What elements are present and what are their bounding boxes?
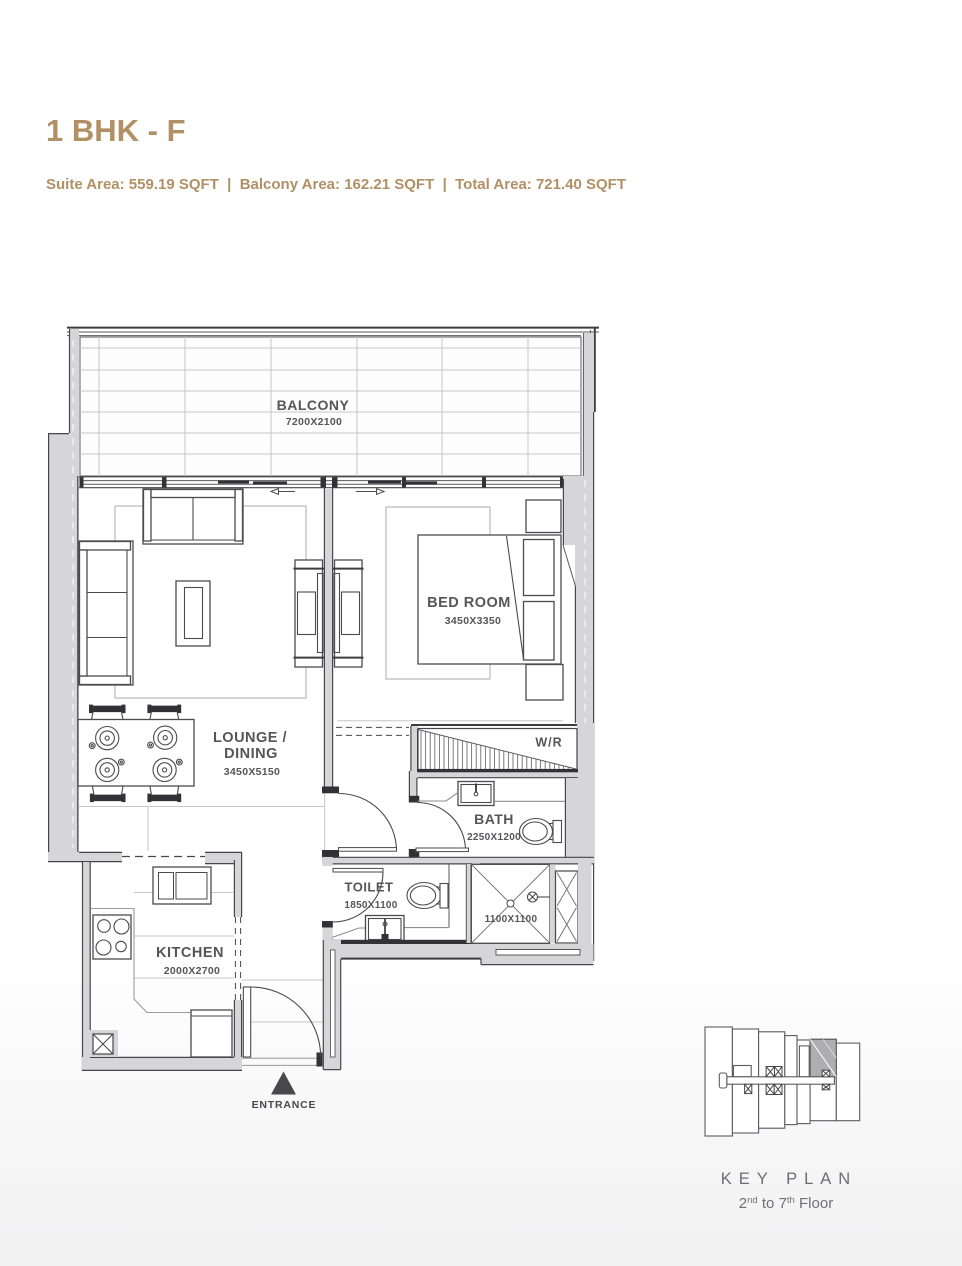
svg-text:TOILET: TOILET — [345, 880, 394, 895]
svg-text:ENTRANCE: ENTRANCE — [252, 1099, 317, 1111]
svg-text:BED ROOM: BED ROOM — [427, 595, 511, 611]
svg-text:3450X3350: 3450X3350 — [445, 615, 501, 627]
svg-text:1100X1100: 1100X1100 — [485, 914, 538, 925]
svg-text:2000X2700: 2000X2700 — [164, 965, 220, 977]
svg-text:LOUNGE /: LOUNGE / — [213, 730, 287, 746]
svg-text:3450X5150: 3450X5150 — [224, 766, 280, 778]
svg-text:KITCHEN: KITCHEN — [156, 945, 224, 961]
svg-text:1 BHK - F: 1 BHK - F — [46, 113, 186, 148]
svg-text:KEY PLAN: KEY PLAN — [721, 1170, 857, 1188]
svg-text:BATH: BATH — [474, 811, 514, 827]
svg-text:2250X1200: 2250X1200 — [467, 832, 521, 843]
svg-text:1850X1100: 1850X1100 — [344, 900, 397, 911]
svg-text:DINING: DINING — [224, 746, 278, 762]
svg-text:BALCONY: BALCONY — [277, 397, 350, 413]
svg-text:W/R: W/R — [535, 736, 562, 750]
svg-text:Suite Area: 559.19 SQFT | Ba: Suite Area: 559.19 SQFT | Balcony Area: … — [46, 176, 626, 193]
svg-text:7200X2100: 7200X2100 — [286, 416, 342, 428]
